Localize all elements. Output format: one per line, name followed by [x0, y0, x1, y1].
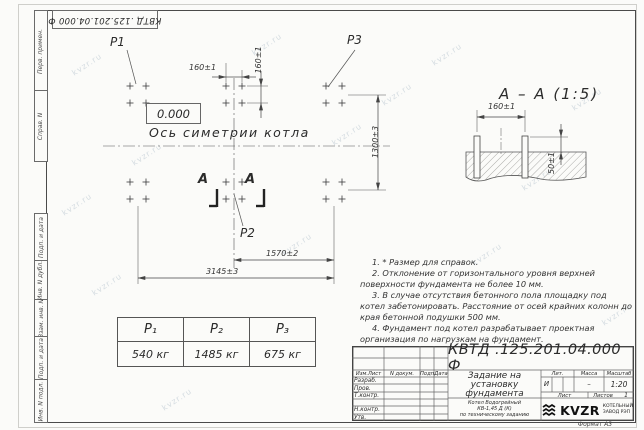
- load-p2-header: P₂: [184, 318, 250, 342]
- section-view-pad: [466, 128, 586, 181]
- kvzr-logo: KVZR КОТЕЛЬНЫЙ ЗАВОД РЭП: [541, 399, 634, 421]
- col-header-izm-list: Изм.Лист: [353, 371, 384, 377]
- drawing-subtitle-line-3: по техническому заданию: [448, 412, 541, 418]
- mass-value: –: [574, 380, 604, 388]
- col-header-n-dokum: N докум.: [385, 371, 419, 377]
- note-2: 2. Отклонение от горизонтального уровня …: [360, 268, 634, 290]
- row-label-razrab: Разраб.: [354, 378, 377, 384]
- section-letter-left: А: [198, 172, 208, 187]
- anchor-bolt-marks: [127, 83, 346, 203]
- kvzr-logo-text: KVZR: [560, 403, 600, 418]
- format-label: Формат А3: [556, 421, 634, 428]
- title-block: КВТД .125.201.04.000 Ф Изм.Лист N докум.…: [352, 346, 634, 421]
- section-letter-right: А: [245, 172, 255, 187]
- drawing-sheet: kvzr.ru kvzr.ru kvzr.ru kvzr.ru kvzr.ru …: [0, 0, 644, 430]
- loads-table: P₁ P₂ P₃ 540 кг 1485 кг 675 кг: [117, 317, 316, 367]
- section-dim-bolt-height: 50±1: [546, 150, 556, 176]
- sheets-label: Листов: [588, 393, 618, 399]
- lit-value: И: [541, 380, 552, 388]
- scale-value: 1:20: [604, 380, 634, 389]
- section-dim-bolt-spacing: 160±1: [488, 102, 515, 111]
- drawing-subtitle-line-2: КВ-1,45 Д (К): [448, 406, 541, 412]
- dim-bolt-spacing-side: 160±1: [253, 46, 263, 74]
- load-point-p3-label: P3: [347, 33, 362, 47]
- drawing-title-line-3: фундамента: [448, 389, 541, 399]
- load-p3-value: 675 кг: [250, 342, 316, 367]
- note-1: 1. * Размер для справок.: [360, 257, 634, 268]
- elevation-value: 0.000: [157, 107, 190, 121]
- col-header-data: Дата: [434, 371, 448, 377]
- loads-table-header-row: P₁ P₂ P₃: [118, 318, 316, 342]
- load-point-p2-label: P2: [240, 226, 255, 240]
- dim-half-length-1570: 1570±2: [266, 249, 298, 258]
- note-3: 3. В случае отсутствия бетонного пола пл…: [360, 290, 634, 323]
- notes-block: 1. * Размер для справок. 2. Отклонение о…: [360, 257, 634, 345]
- load-p1-value: 540 кг: [118, 342, 184, 367]
- elevation-marker: 0.000: [146, 103, 201, 124]
- load-p1-header: P₁: [118, 318, 184, 342]
- section-cut-marks: [209, 189, 264, 207]
- lit-header: Лит.: [541, 371, 574, 377]
- kvzr-logo-caption: КОТЕЛЬНЫЙ ЗАВОД РЭП: [603, 404, 633, 415]
- load-p3-header: P₃: [250, 318, 316, 342]
- title-block-doc-number: КВТД .125.201.04.000 Ф: [448, 347, 634, 369]
- load-point-p1-label: P1: [110, 35, 125, 49]
- axis-of-symmetry-label: Ось симетрии котла: [149, 125, 310, 140]
- kvzr-logo-icon: [542, 404, 557, 417]
- sheet-label: Лист: [541, 393, 588, 399]
- section-view-title: А – А (1:5): [499, 85, 599, 103]
- col-header-podp: Подп.: [420, 371, 434, 377]
- mass-header: Масса: [574, 371, 604, 377]
- row-label-tkontr: Т.контр.: [354, 393, 379, 399]
- kvzr-caption-line-2: ЗАВОД РЭП: [603, 410, 633, 416]
- load-p2-value: 1485 кг: [184, 342, 250, 367]
- scale-header: Масштаб: [604, 371, 634, 377]
- row-label-utv: Утв.: [354, 415, 366, 421]
- dim-total-length-3145: 3145±3: [206, 267, 238, 276]
- anchor-bolt-left: [474, 136, 480, 178]
- dim-bolt-spacing-top: 160±1: [189, 63, 216, 72]
- dim-width-1300: 1300±3: [370, 125, 380, 159]
- row-label-nkontr: Н.контр.: [354, 407, 380, 413]
- anchor-bolt-right: [522, 136, 528, 178]
- row-label-prov: Пров.: [354, 386, 371, 392]
- sheets-value: 1: [618, 392, 634, 399]
- loads-table-value-row: 540 кг 1485 кг 675 кг: [118, 342, 316, 367]
